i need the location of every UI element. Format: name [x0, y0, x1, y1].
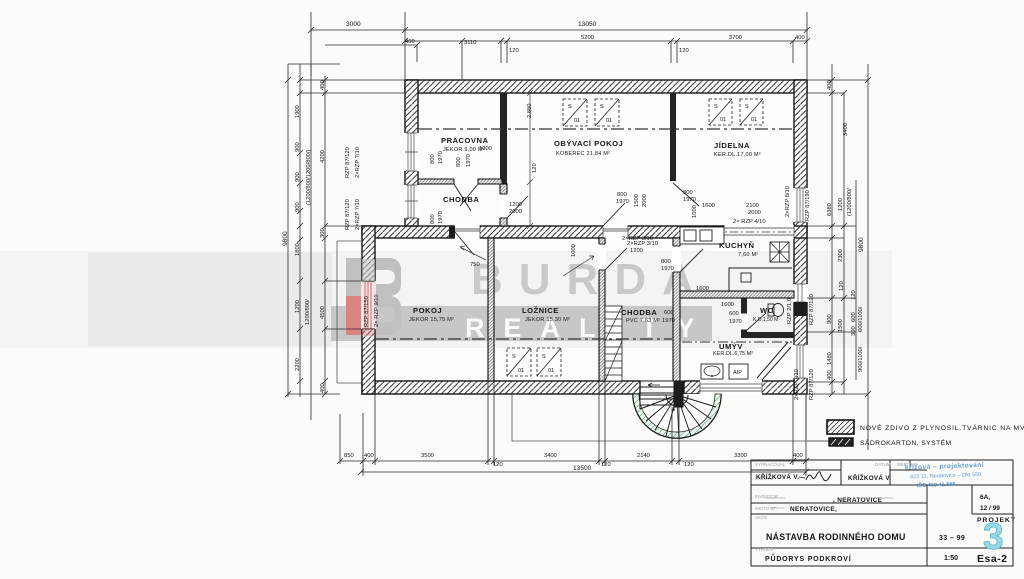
svg-text:13500: 13500 [573, 465, 592, 472]
svg-text:CHODBA: CHODBA [621, 308, 657, 317]
svg-text:RZP 2/1,0: RZP 2/1,0 [787, 298, 793, 324]
svg-text:2100: 2100 [746, 203, 759, 209]
svg-text:S: S [568, 104, 572, 110]
svg-text:2000: 2000 [509, 209, 522, 215]
svg-text:400: 400 [320, 80, 326, 90]
svg-text:WC: WC [760, 306, 774, 315]
svg-text:2×RZP 7/10: 2×RZP 7/10 [355, 199, 361, 230]
svg-text:400: 400 [795, 35, 805, 41]
svg-text:JEKOR 15,75 M²: JEKOR 15,75 M² [409, 317, 454, 323]
svg-text:1970: 1970 [662, 318, 675, 324]
svg-text:2,880: 2,880 [527, 103, 533, 118]
svg-text:3400: 3400 [544, 453, 557, 459]
svg-text:1970: 1970 [661, 266, 674, 272]
svg-text:3500: 3500 [421, 453, 434, 459]
svg-text:VYPRACOVAL: VYPRACOVAL [755, 462, 786, 467]
svg-text:120: 120 [839, 281, 845, 291]
svg-text:NÁSTAVBA RODINNÉHO DOMU: NÁSTAVBA RODINNÉHO DOMU [766, 532, 906, 542]
svg-text:1970: 1970 [729, 319, 742, 325]
svg-text:S: S [542, 354, 546, 360]
svg-text:3400: 3400 [843, 123, 849, 136]
svg-text:120: 120 [851, 290, 857, 300]
svg-text:2× RZP 9/10: 2× RZP 9/10 [374, 294, 380, 327]
svg-text:DATUM: DATUM [875, 462, 891, 467]
svg-text:400: 400 [827, 370, 833, 380]
svg-text:2×RZP 7/10: 2×RZP 7/10 [355, 147, 361, 178]
svg-text:RZP 87/120: RZP 87/120 [809, 294, 815, 325]
svg-text:800: 800 [661, 259, 671, 265]
svg-text:S: S [745, 104, 749, 110]
svg-text:01: 01 [518, 368, 524, 374]
svg-text:300: 300 [851, 326, 857, 336]
svg-text:K.O.1,50 M: K.O.1,50 M [753, 317, 778, 323]
svg-text:1000: 1000 [692, 205, 698, 218]
svg-text:120: 120 [493, 462, 503, 468]
svg-text:9800: 9800 [858, 237, 865, 252]
svg-text:7,60 M²: 7,60 M² [738, 252, 758, 258]
svg-text:01: 01 [574, 118, 580, 124]
svg-text:POKOJ: POKOJ [413, 306, 442, 315]
svg-text:RZP 87/190: RZP 87/190 [805, 190, 811, 221]
svg-text:400: 400 [364, 453, 374, 459]
svg-text:1970: 1970 [438, 211, 444, 224]
svg-text:400: 400 [793, 453, 803, 459]
svg-text:KŘÍŽKOVÁ V.: KŘÍŽKOVÁ V. [756, 472, 799, 481]
svg-text:900: 900 [827, 314, 833, 324]
svg-text:2×RZP 7/10: 2×RZP 7/10 [794, 369, 800, 400]
svg-text:1200/800/: 1200/800/ [305, 299, 311, 325]
svg-text:800: 800 [430, 154, 436, 164]
svg-text:12 / 99: 12 / 99 [980, 505, 1000, 512]
svg-text:400: 400 [320, 383, 326, 393]
svg-text:2× RZP 4/10: 2× RZP 4/10 [733, 219, 766, 225]
svg-text:1500: 1500 [634, 194, 640, 207]
svg-text:13050: 13050 [578, 21, 597, 28]
svg-text:S: S [600, 104, 604, 110]
svg-text:9800: 9800 [282, 231, 289, 246]
svg-text:900: 900 [295, 172, 301, 182]
svg-text:2000: 2000 [748, 210, 761, 216]
svg-text:(1200/800/: (1200/800/ [847, 188, 853, 216]
svg-text:900: 900 [295, 202, 301, 212]
svg-text:4200: 4200 [320, 150, 326, 163]
svg-text:600/1100/: 600/1100/ [858, 306, 864, 332]
svg-text:120: 120 [509, 48, 519, 54]
svg-text:750: 750 [470, 262, 480, 268]
svg-text:800: 800 [683, 190, 693, 196]
svg-text:900: 900 [295, 142, 301, 152]
svg-text:1900: 1900 [295, 105, 301, 118]
svg-text:LOŽNICE: LOŽNICE [522, 306, 559, 315]
svg-text:RZP 87/120: RZP 87/120 [809, 369, 815, 400]
svg-text:3300: 3300 [734, 453, 747, 459]
svg-text:1200: 1200 [630, 248, 643, 254]
svg-text:120: 120 [684, 462, 694, 468]
svg-text:PRACOVNA: PRACOVNA [441, 136, 488, 145]
svg-text:2000: 2000 [642, 194, 648, 207]
svg-text:800: 800 [430, 214, 436, 224]
svg-text:1970: 1970 [466, 154, 472, 167]
svg-text:CHODBA: CHODBA [443, 195, 479, 204]
svg-text:S: S [512, 354, 516, 360]
svg-text:1970: 1970 [438, 151, 444, 164]
svg-text:01: 01 [720, 117, 726, 123]
svg-text:300: 300 [320, 228, 326, 238]
svg-text:2300: 2300 [838, 249, 844, 262]
svg-text:KER.DL.17,00 M²: KER.DL.17,00 M² [714, 152, 761, 158]
svg-text:RZP 87/120: RZP 87/120 [345, 147, 351, 178]
svg-text:RZP 87/150: RZP 87/150 [364, 296, 370, 327]
svg-text:1200: 1200 [509, 202, 522, 208]
svg-text:800: 800 [456, 157, 462, 167]
svg-text:2140: 2140 [637, 453, 650, 459]
svg-text:6A,: 6A, [980, 494, 990, 501]
svg-text:3110: 3110 [464, 40, 476, 46]
svg-text:1200: 1200 [295, 300, 301, 313]
svg-text:1000: 1000 [571, 244, 577, 257]
svg-text:UMÝV: UMÝV [719, 342, 743, 351]
svg-text:KER.DL.6,75 M²: KER.DL.6,75 M² [713, 351, 753, 357]
svg-text:1:50: 1:50 [944, 555, 958, 562]
svg-text:120: 120 [679, 48, 689, 54]
svg-text:1800: 1800 [295, 243, 301, 256]
svg-text:6380: 6380 [827, 203, 833, 216]
svg-text:OBÝVACÍ POKOJ: OBÝVACÍ POKOJ [554, 139, 623, 148]
svg-text:3700: 3700 [729, 35, 742, 41]
svg-text:2×RZP 3/10: 2×RZP 3/10 [627, 241, 658, 247]
svg-text:120: 120 [601, 462, 611, 468]
svg-text:2×RZP 8/10: 2×RZP 8/10 [785, 186, 791, 217]
svg-text:33 – 99: 33 – 99 [939, 535, 965, 542]
svg-text:2200: 2200 [295, 358, 301, 371]
svg-text:JÍDELNA: JÍDELNA [714, 141, 750, 150]
svg-text:MISTO ST.: MISTO ST. [755, 506, 777, 511]
svg-text:VYKRES: VYKRES [755, 547, 773, 552]
svg-text:5200: 5200 [581, 35, 594, 41]
svg-text:01: 01 [751, 117, 757, 123]
svg-text:600: 600 [664, 310, 674, 316]
svg-text:01: 01 [606, 118, 612, 124]
svg-text:900/1100/: 900/1100/ [858, 346, 864, 372]
svg-text:3: 3 [983, 516, 1004, 557]
svg-text:NERATOVICE,: NERATOVICE, [790, 506, 837, 513]
svg-text:1000: 1000 [479, 146, 492, 152]
svg-text:NOVÉ ZDIVO Z PLYNOSIL.TVÁRNIC: NOVÉ ZDIVO Z PLYNOSIL.TVÁRNIC NA MVC 25- [860, 423, 1024, 432]
svg-text:(1200/800/1200/800/): (1200/800/1200/800/) [306, 149, 312, 205]
svg-text:IČO 463 41 888: IČO 463 41 888 [916, 481, 955, 489]
svg-text:120: 120 [532, 163, 538, 173]
svg-text:400: 400 [405, 39, 415, 45]
svg-text:400: 400 [827, 80, 833, 90]
svg-text:JEKOR 15,30 M²: JEKOR 15,30 M² [525, 317, 570, 323]
svg-text:KOBEREC 21,84 M²: KOBEREC 21,84 M² [556, 151, 610, 157]
svg-text:1500: 1500 [838, 319, 844, 332]
svg-text:KŘÍŽKOVÁ V.: KŘÍŽKOVÁ V. [848, 473, 891, 482]
svg-text:KUCHYŇ: KUCHYŇ [719, 241, 755, 250]
svg-text:850: 850 [344, 453, 354, 459]
svg-text:600: 600 [729, 311, 739, 317]
svg-text:600: 600 [851, 312, 857, 322]
svg-text:3000: 3000 [346, 21, 361, 28]
svg-text:1970: 1970 [683, 197, 696, 203]
svg-text:AKCE: AKCE [755, 515, 767, 520]
svg-text:AIP: AIP [733, 370, 742, 376]
svg-text:RZP 87/120: RZP 87/120 [345, 199, 351, 230]
svg-text:1970: 1970 [616, 199, 629, 205]
svg-text:S: S [714, 104, 718, 110]
svg-text:1480: 1480 [827, 352, 833, 365]
svg-text:1600: 1600 [702, 203, 715, 209]
svg-text:SÁDROKARTON. SYSTÉM: SÁDROKARTON. SYSTÉM [860, 438, 952, 447]
svg-text:4500: 4500 [320, 306, 326, 319]
svg-text:01: 01 [548, 368, 554, 374]
svg-text:PVC 7,63 M²: PVC 7,63 M² [626, 318, 660, 324]
svg-text:800: 800 [617, 192, 627, 198]
svg-text:1600: 1600 [696, 286, 709, 292]
svg-text:1200: 1200 [838, 198, 844, 211]
svg-text:1600: 1600 [721, 302, 734, 308]
